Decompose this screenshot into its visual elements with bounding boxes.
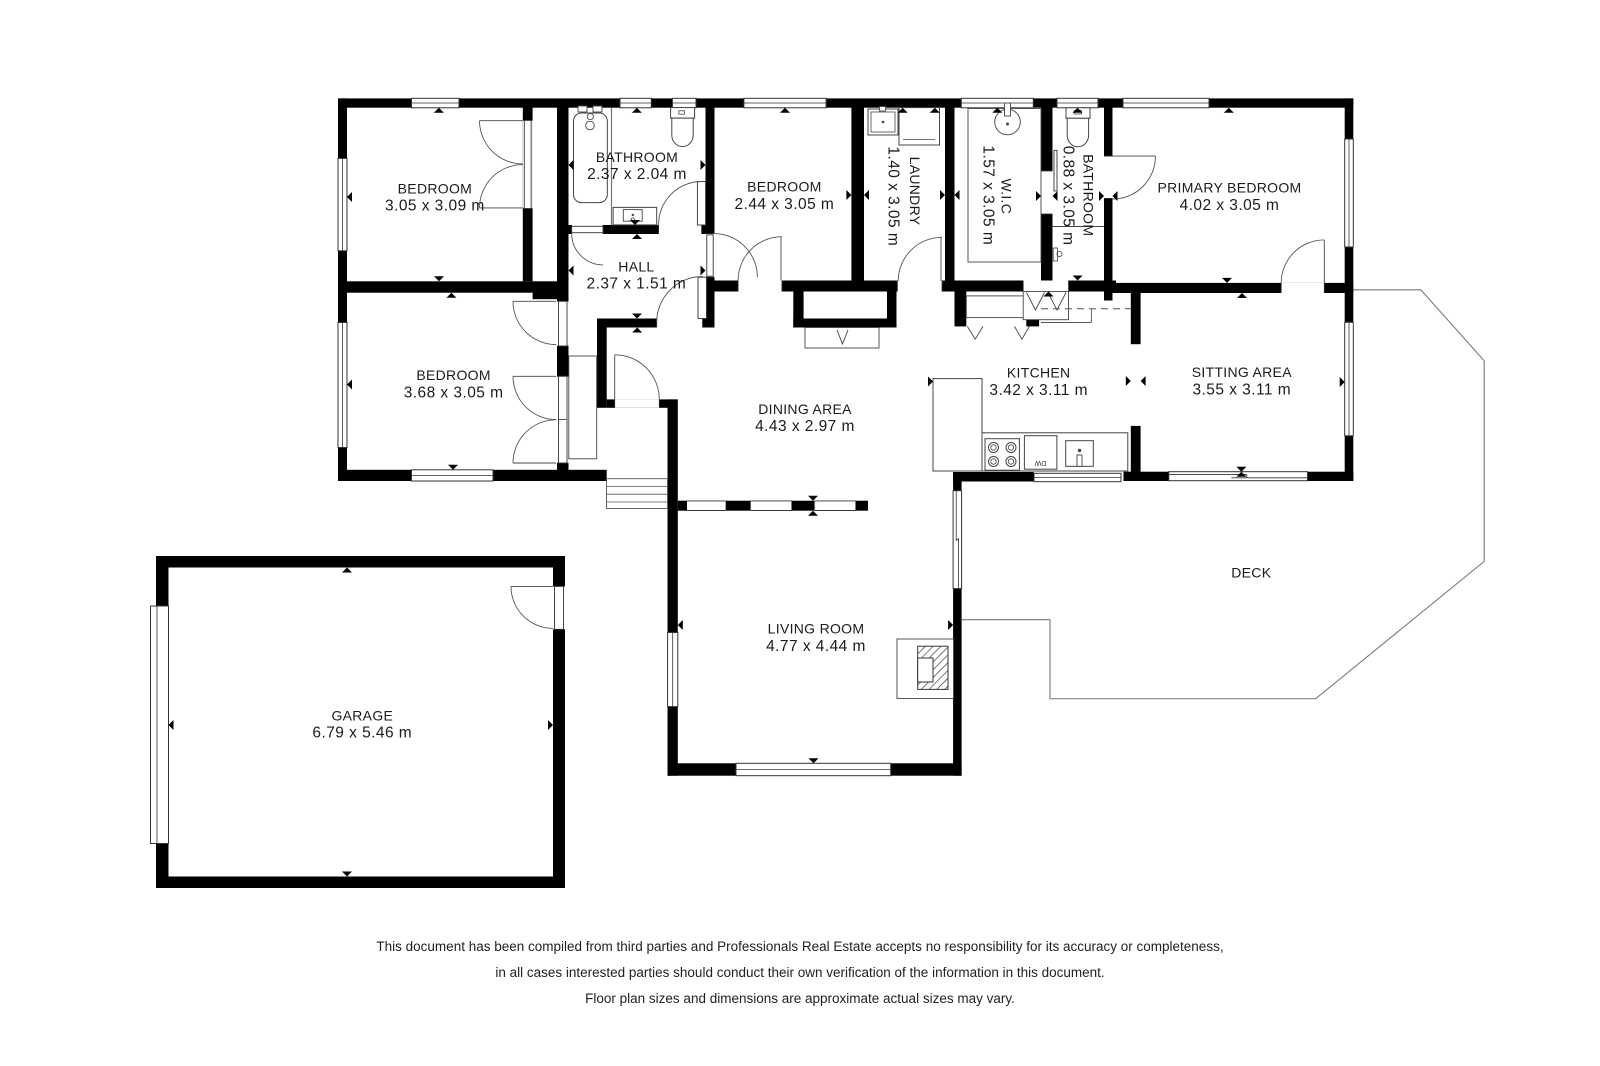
svg-text:1.40 x 3.05 m: 1.40 x 3.05 m: [884, 146, 901, 246]
svg-text:PRIMARY BEDROOM: PRIMARY BEDROOM: [1157, 180, 1301, 196]
svg-text:KITCHEN: KITCHEN: [1007, 365, 1071, 381]
svg-text:2.37 x 1.51 m: 2.37 x 1.51 m: [587, 276, 687, 293]
svg-text:1.57 x 3.05 m: 1.57 x 3.05 m: [980, 145, 997, 245]
svg-text:DINING AREA: DINING AREA: [758, 401, 852, 417]
svg-text:LAUNDRY: LAUNDRY: [907, 157, 923, 226]
svg-text:BATHROOM: BATHROOM: [596, 149, 678, 165]
svg-text:0.88 x 3.05 m: 0.88 x 3.05 m: [1059, 146, 1076, 246]
svg-text:2.44 x 3.05 m: 2.44 x 3.05 m: [735, 196, 835, 213]
svg-text:Floor plan sizes and dimension: Floor plan sizes and dimensions are appr…: [585, 991, 1015, 1006]
svg-text:BEDROOM: BEDROOM: [747, 179, 821, 195]
svg-text:DW: DW: [1034, 459, 1046, 466]
svg-text:3.05 x 3.09 m: 3.05 x 3.09 m: [385, 198, 485, 215]
svg-text:DECK: DECK: [1231, 565, 1271, 581]
svg-text:BEDROOM: BEDROOM: [398, 180, 472, 196]
svg-text:4.02 x 3.05 m: 4.02 x 3.05 m: [1180, 197, 1280, 214]
svg-text:3.55 x 3.11 m: 3.55 x 3.11 m: [1192, 381, 1291, 398]
svg-text:in all cases interested partie: in all cases interested parties should c…: [495, 965, 1104, 980]
svg-text:2.37 x 2.04 m: 2.37 x 2.04 m: [587, 166, 687, 183]
svg-text:W.I.C: W.I.C: [999, 178, 1015, 214]
svg-text:HALL: HALL: [618, 258, 654, 274]
svg-text:4.77 x 4.44 m: 4.77 x 4.44 m: [766, 638, 866, 655]
svg-text:GARAGE: GARAGE: [331, 707, 393, 723]
svg-text:BEDROOM: BEDROOM: [416, 367, 490, 383]
svg-text:6.79 x 5.46 m: 6.79 x 5.46 m: [312, 725, 412, 742]
svg-text:LIVING ROOM: LIVING ROOM: [768, 621, 865, 637]
svg-text:4.43 x 2.97 m: 4.43 x 2.97 m: [755, 418, 855, 435]
svg-text:SITTING AREA: SITTING AREA: [1192, 364, 1292, 380]
svg-text:BATHROOM: BATHROOM: [1081, 154, 1097, 236]
svg-text:3.42 x 3.11 m: 3.42 x 3.11 m: [989, 382, 1088, 399]
svg-text:3.68 x 3.05 m: 3.68 x 3.05 m: [404, 384, 504, 401]
svg-text:This document has been compile: This document has been compiled from thi…: [376, 939, 1223, 954]
